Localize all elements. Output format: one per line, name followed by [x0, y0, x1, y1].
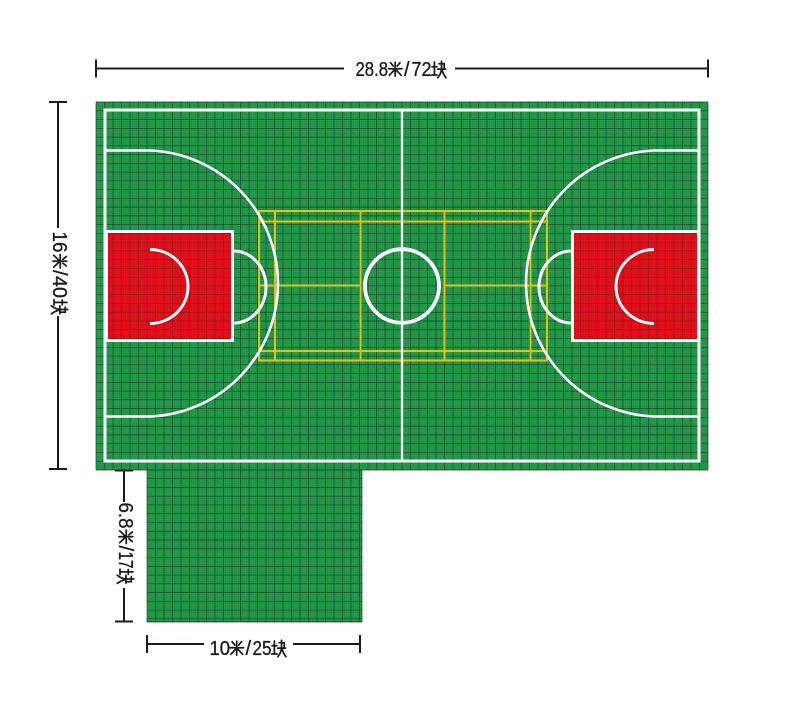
svg-text:16: 16	[48, 232, 70, 253]
svg-text:10: 10	[210, 638, 231, 660]
svg-text:40: 40	[48, 276, 70, 298]
svg-text:28.8: 28.8	[356, 59, 389, 81]
svg-text:6.8: 6.8	[114, 503, 136, 529]
svg-text:17: 17	[114, 552, 136, 569]
svg-text:25: 25	[253, 638, 272, 660]
svg-text:/: /	[404, 59, 410, 81]
svg-text:72: 72	[412, 59, 432, 81]
svg-text:/: /	[246, 638, 252, 660]
